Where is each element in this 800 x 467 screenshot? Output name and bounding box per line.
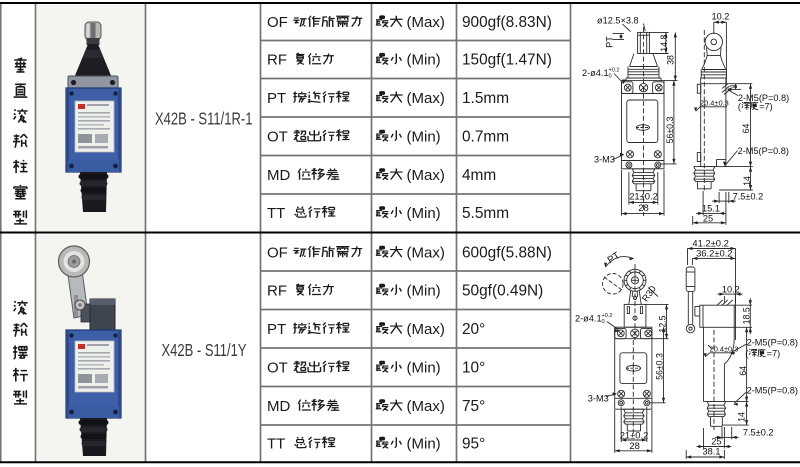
svg-text:20.4±0.3: 20.4±0.3 <box>710 345 739 354</box>
svg-text:2-M5(P=0.8): 2-M5(P=0.8) <box>747 338 798 348</box>
svg-text:X42B - S11/1R-1: X42B - S11/1R-1 <box>155 108 253 128</box>
svg-text:7.5±0.2: 7.5±0.2 <box>733 191 764 201</box>
svg-text:21±0.2: 21±0.2 <box>629 191 658 202</box>
svg-text:OT: OT <box>267 359 288 376</box>
svg-text:PT: PT <box>267 321 286 338</box>
svg-text:3-M3: 3-M3 <box>594 155 615 165</box>
svg-text:600gf(5.88N): 600gf(5.88N) <box>462 244 552 261</box>
svg-text:14: 14 <box>737 412 747 422</box>
svg-text:20°: 20° <box>462 321 485 338</box>
svg-text:OF: OF <box>267 14 288 31</box>
svg-text:OT: OT <box>267 128 288 145</box>
svg-text:0: 0 <box>602 319 605 325</box>
svg-text:MD: MD <box>267 167 290 184</box>
svg-text:36.2±0.2: 36.2±0.2 <box>696 248 732 259</box>
svg-text:TT: TT <box>267 205 285 222</box>
svg-text:0: 0 <box>609 74 612 80</box>
svg-text:2-ø4.1: 2-ø4.1 <box>582 68 609 78</box>
svg-text:21±0.2: 21±0.2 <box>620 429 649 440</box>
svg-text:150gf(1.47N): 150gf(1.47N) <box>462 52 552 69</box>
svg-text:(Min): (Min) <box>407 52 441 69</box>
svg-text:X42B - S11/1Y: X42B - S11/1Y <box>162 340 247 360</box>
svg-text:50gf(0.49N): 50gf(0.49N) <box>462 282 543 299</box>
svg-text:(Max): (Max) <box>407 90 445 107</box>
svg-text:56±0.3: 56±0.3 <box>655 353 665 380</box>
svg-text:2-M5(P=0.8): 2-M5(P=0.8) <box>738 146 789 156</box>
svg-text:(Max): (Max) <box>407 321 445 338</box>
svg-text:10.2: 10.2 <box>722 284 740 294</box>
svg-text:PT: PT <box>267 90 286 107</box>
svg-text:(Min): (Min) <box>407 205 441 222</box>
svg-text:38.1: 38.1 <box>703 446 721 456</box>
svg-text:(: ( <box>738 101 741 111</box>
svg-text:(Max): (Max) <box>407 167 445 184</box>
svg-text:RF: RF <box>267 52 287 69</box>
svg-text:7.5±0.2: 7.5±0.2 <box>743 427 774 437</box>
svg-text:ø12.5×3.8: ø12.5×3.8 <box>597 16 639 26</box>
svg-text:10.2: 10.2 <box>712 12 730 22</box>
svg-text:900gf(8.83N): 900gf(8.83N) <box>462 14 552 31</box>
svg-text:14.8: 14.8 <box>659 35 669 52</box>
svg-text:28: 28 <box>638 202 648 213</box>
svg-text:1.5mm: 1.5mm <box>462 90 509 107</box>
svg-text:64: 64 <box>738 366 748 376</box>
svg-text:0.7mm: 0.7mm <box>462 128 509 145</box>
svg-text:15.1: 15.1 <box>702 204 720 214</box>
svg-text:(: ( <box>745 348 748 358</box>
svg-text:95°: 95° <box>462 435 485 452</box>
svg-text:(Max): (Max) <box>407 244 445 261</box>
svg-text:(Min): (Min) <box>407 282 441 299</box>
svg-text:64: 64 <box>741 124 751 134</box>
svg-text:(Max): (Max) <box>407 14 445 31</box>
svg-text:38: 38 <box>665 55 675 65</box>
svg-text:=7): =7) <box>767 348 781 358</box>
svg-text:28: 28 <box>629 440 639 451</box>
svg-text:(Min): (Min) <box>407 435 441 452</box>
svg-text:56±0.3: 56±0.3 <box>665 116 675 143</box>
svg-text:3-M3: 3-M3 <box>588 394 609 404</box>
svg-text:TT: TT <box>267 435 285 452</box>
svg-text:2-ø4.1: 2-ø4.1 <box>575 314 602 324</box>
svg-text:75°: 75° <box>462 398 485 415</box>
svg-text:RF: RF <box>267 282 287 299</box>
svg-text:25: 25 <box>703 213 713 223</box>
svg-text:PT: PT <box>604 36 614 48</box>
svg-text:=7): =7) <box>759 101 773 111</box>
svg-text:(Max): (Max) <box>407 398 445 415</box>
svg-text:(Min): (Min) <box>407 359 441 376</box>
svg-text:(Min): (Min) <box>407 128 441 145</box>
svg-text:10°: 10° <box>462 359 485 376</box>
svg-text:OF: OF <box>267 244 288 261</box>
svg-text:14: 14 <box>742 176 752 186</box>
svg-text:12.5: 12.5 <box>657 315 667 332</box>
svg-text:2-M5(P=0.8): 2-M5(P=0.8) <box>747 386 798 396</box>
svg-text:25: 25 <box>711 436 721 446</box>
svg-text:4mm: 4mm <box>462 167 496 184</box>
svg-text:20.4±0.3: 20.4±0.3 <box>700 99 729 108</box>
svg-text:MD: MD <box>267 398 290 415</box>
svg-text:18.5: 18.5 <box>742 307 752 324</box>
svg-text:5.5mm: 5.5mm <box>462 205 509 222</box>
